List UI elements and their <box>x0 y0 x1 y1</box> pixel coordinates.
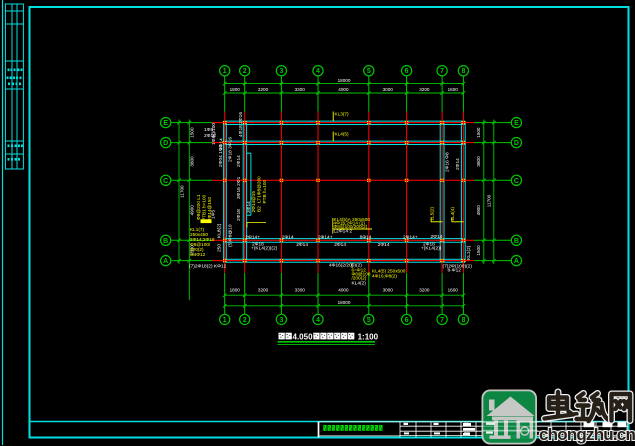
svg-text:4900: 4900 <box>476 205 481 216</box>
svg-text:A: A <box>163 258 168 265</box>
svg-text:KL4(5): KL4(5) <box>335 131 350 136</box>
svg-text:2Φ18 3Φ16: 2Φ18 3Φ16 <box>228 137 234 162</box>
svg-text:2: 2 <box>243 317 247 324</box>
svg-text:2Φ18: 2Φ18 <box>236 209 242 221</box>
svg-text:(5)Φ8@10: (5)Φ8@10 <box>228 224 234 247</box>
svg-text:2Φ14+: 2Φ14+ <box>245 234 260 240</box>
svg-text:8: 8 <box>461 317 465 324</box>
svg-text:1600: 1600 <box>448 288 459 293</box>
svg-text:3200: 3200 <box>258 87 269 92</box>
svg-text:2Φ14: 2Φ14 <box>455 158 461 170</box>
svg-text:3000: 3000 <box>383 87 394 92</box>
svg-text:3800: 3800 <box>190 156 195 167</box>
svg-text:(7)2Φ18(2) KΦ12: (7)2Φ18(2) KΦ12 <box>189 263 227 269</box>
svg-text:2: 2 <box>243 68 247 75</box>
svg-text:2Φ14+: 2Φ14+ <box>318 234 333 240</box>
svg-text:4: 4 <box>316 317 320 324</box>
svg-text:chongzhu.cn: chongzhu.cn <box>539 425 635 444</box>
svg-text:1500: 1500 <box>476 127 481 138</box>
svg-text:7: 7 <box>440 317 444 324</box>
svg-text:3800: 3800 <box>476 156 481 167</box>
svg-text:11700: 11700 <box>487 194 492 207</box>
svg-text:3200: 3200 <box>258 288 269 293</box>
svg-text:+(KL4(2)): +(KL4(2)) <box>421 245 442 251</box>
svg-text:2Φ14: 2Φ14 <box>378 242 390 248</box>
svg-text:LT1Φ8@200: LT1Φ8@200 <box>257 176 262 203</box>
svg-text:4000: 4000 <box>338 288 349 293</box>
svg-text:4Φ14: 4Φ14 <box>219 138 225 150</box>
svg-text:3000: 3000 <box>383 288 394 293</box>
svg-text:8: 8 <box>461 68 465 75</box>
svg-text:1500: 1500 <box>476 245 481 256</box>
svg-text:G4Φ12: G4Φ12 <box>190 252 206 257</box>
svg-text:4.050: 4.050 <box>293 332 314 341</box>
svg-text:C: C <box>514 178 519 185</box>
svg-text:Φ8@200 L1: Φ8@200 L1 <box>196 194 201 220</box>
svg-text:1800: 1800 <box>230 87 241 92</box>
svg-text:7: 7 <box>440 68 444 75</box>
svg-text:8-Φ12: 8-Φ12 <box>448 268 462 274</box>
svg-text:2Φ14: 2Φ14 <box>282 234 294 240</box>
svg-text:KL3(7): KL3(7) <box>335 111 350 116</box>
svg-text:2Φ14: 2Φ14 <box>296 242 308 248</box>
svg-text:8Φ14: 8Φ14 <box>360 234 372 240</box>
svg-text:250: 250 <box>217 244 223 252</box>
svg-text:D: D <box>163 140 168 147</box>
svg-text:3200: 3200 <box>419 288 430 293</box>
svg-text:4Φ16(2/200)(2): 4Φ16(2/200)(2) <box>329 263 362 269</box>
svg-text:5: 5 <box>367 317 371 324</box>
svg-text:1500: 1500 <box>190 127 195 138</box>
svg-text:E: E <box>514 120 519 127</box>
svg-text:4000: 4000 <box>338 87 349 92</box>
svg-text:3Φ14: 3Φ14 <box>246 201 252 213</box>
svg-text:1800: 1800 <box>230 288 241 293</box>
svg-text:2L5(2): 2L5(2) <box>429 207 434 221</box>
svg-text:E: E <box>163 120 168 127</box>
svg-text:PTB h=100: PTB h=100 <box>262 180 267 204</box>
svg-text:4Φ18 2Φ16: 4Φ18 2Φ16 <box>238 112 244 137</box>
svg-text:C: C <box>163 178 168 185</box>
svg-text:2Φ14+: 2Φ14+ <box>403 234 418 240</box>
svg-text:3: 3 <box>279 68 283 75</box>
svg-text:6: 6 <box>405 68 409 75</box>
svg-text:2Φ14: 2Φ14 <box>431 234 443 240</box>
svg-text:+(KL4(2))(2): +(KL4(2))(2) <box>251 245 278 251</box>
svg-text:2Φ18: 2Φ18 <box>204 133 216 139</box>
svg-text:A: A <box>514 258 519 265</box>
svg-text:3200: 3200 <box>419 87 430 92</box>
svg-text:/200(2): /200(2) <box>352 276 367 281</box>
svg-text:4900: 4900 <box>190 205 195 216</box>
svg-text:6: 6 <box>405 317 409 324</box>
svg-text:11700: 11700 <box>180 185 185 198</box>
svg-text:2L4(4): 2L4(4) <box>450 207 455 221</box>
svg-text:2Φ14: 2Φ14 <box>334 242 346 248</box>
svg-text:2Φ14: 2Φ14 <box>236 155 242 167</box>
svg-text:B: B <box>163 238 168 245</box>
svg-text:1:100: 1:100 <box>358 332 379 341</box>
svg-text:1: 1 <box>223 68 227 75</box>
svg-text:KL1(2): KL1(2) <box>466 245 472 260</box>
svg-text:18000: 18000 <box>338 300 351 305</box>
svg-text:1Φ5: 1Φ5 <box>211 210 217 219</box>
svg-text:PTB1 h=100: PTB1 h=100 <box>202 194 207 221</box>
svg-text:3300: 3300 <box>295 87 306 92</box>
svg-text:3Φ16 2Φ1: 3Φ16 2Φ1 <box>236 176 242 199</box>
svg-text:B2: B2 <box>257 206 262 212</box>
svg-text:3300: 3300 <box>295 288 306 293</box>
svg-text:D: D <box>514 140 519 147</box>
svg-text:KL8(2): KL8(2) <box>217 223 223 238</box>
svg-text:B: B <box>514 238 519 245</box>
svg-text:1: 1 <box>223 317 227 324</box>
svg-text:2Φ16 Φ8: 2Φ16 Φ8 <box>445 152 451 172</box>
svg-text:1Φ8: 1Φ8 <box>204 127 213 133</box>
svg-text:4Φ16;Φ8(2): 4Φ16;Φ8(2) <box>372 274 397 279</box>
svg-text:5: 5 <box>367 68 371 75</box>
svg-text:3: 3 <box>279 317 283 324</box>
svg-text:KL4(2): KL4(2) <box>352 281 367 287</box>
svg-text:4: 4 <box>316 68 320 75</box>
svg-text:18000: 18000 <box>338 78 351 83</box>
svg-text:1600: 1600 <box>448 87 459 92</box>
